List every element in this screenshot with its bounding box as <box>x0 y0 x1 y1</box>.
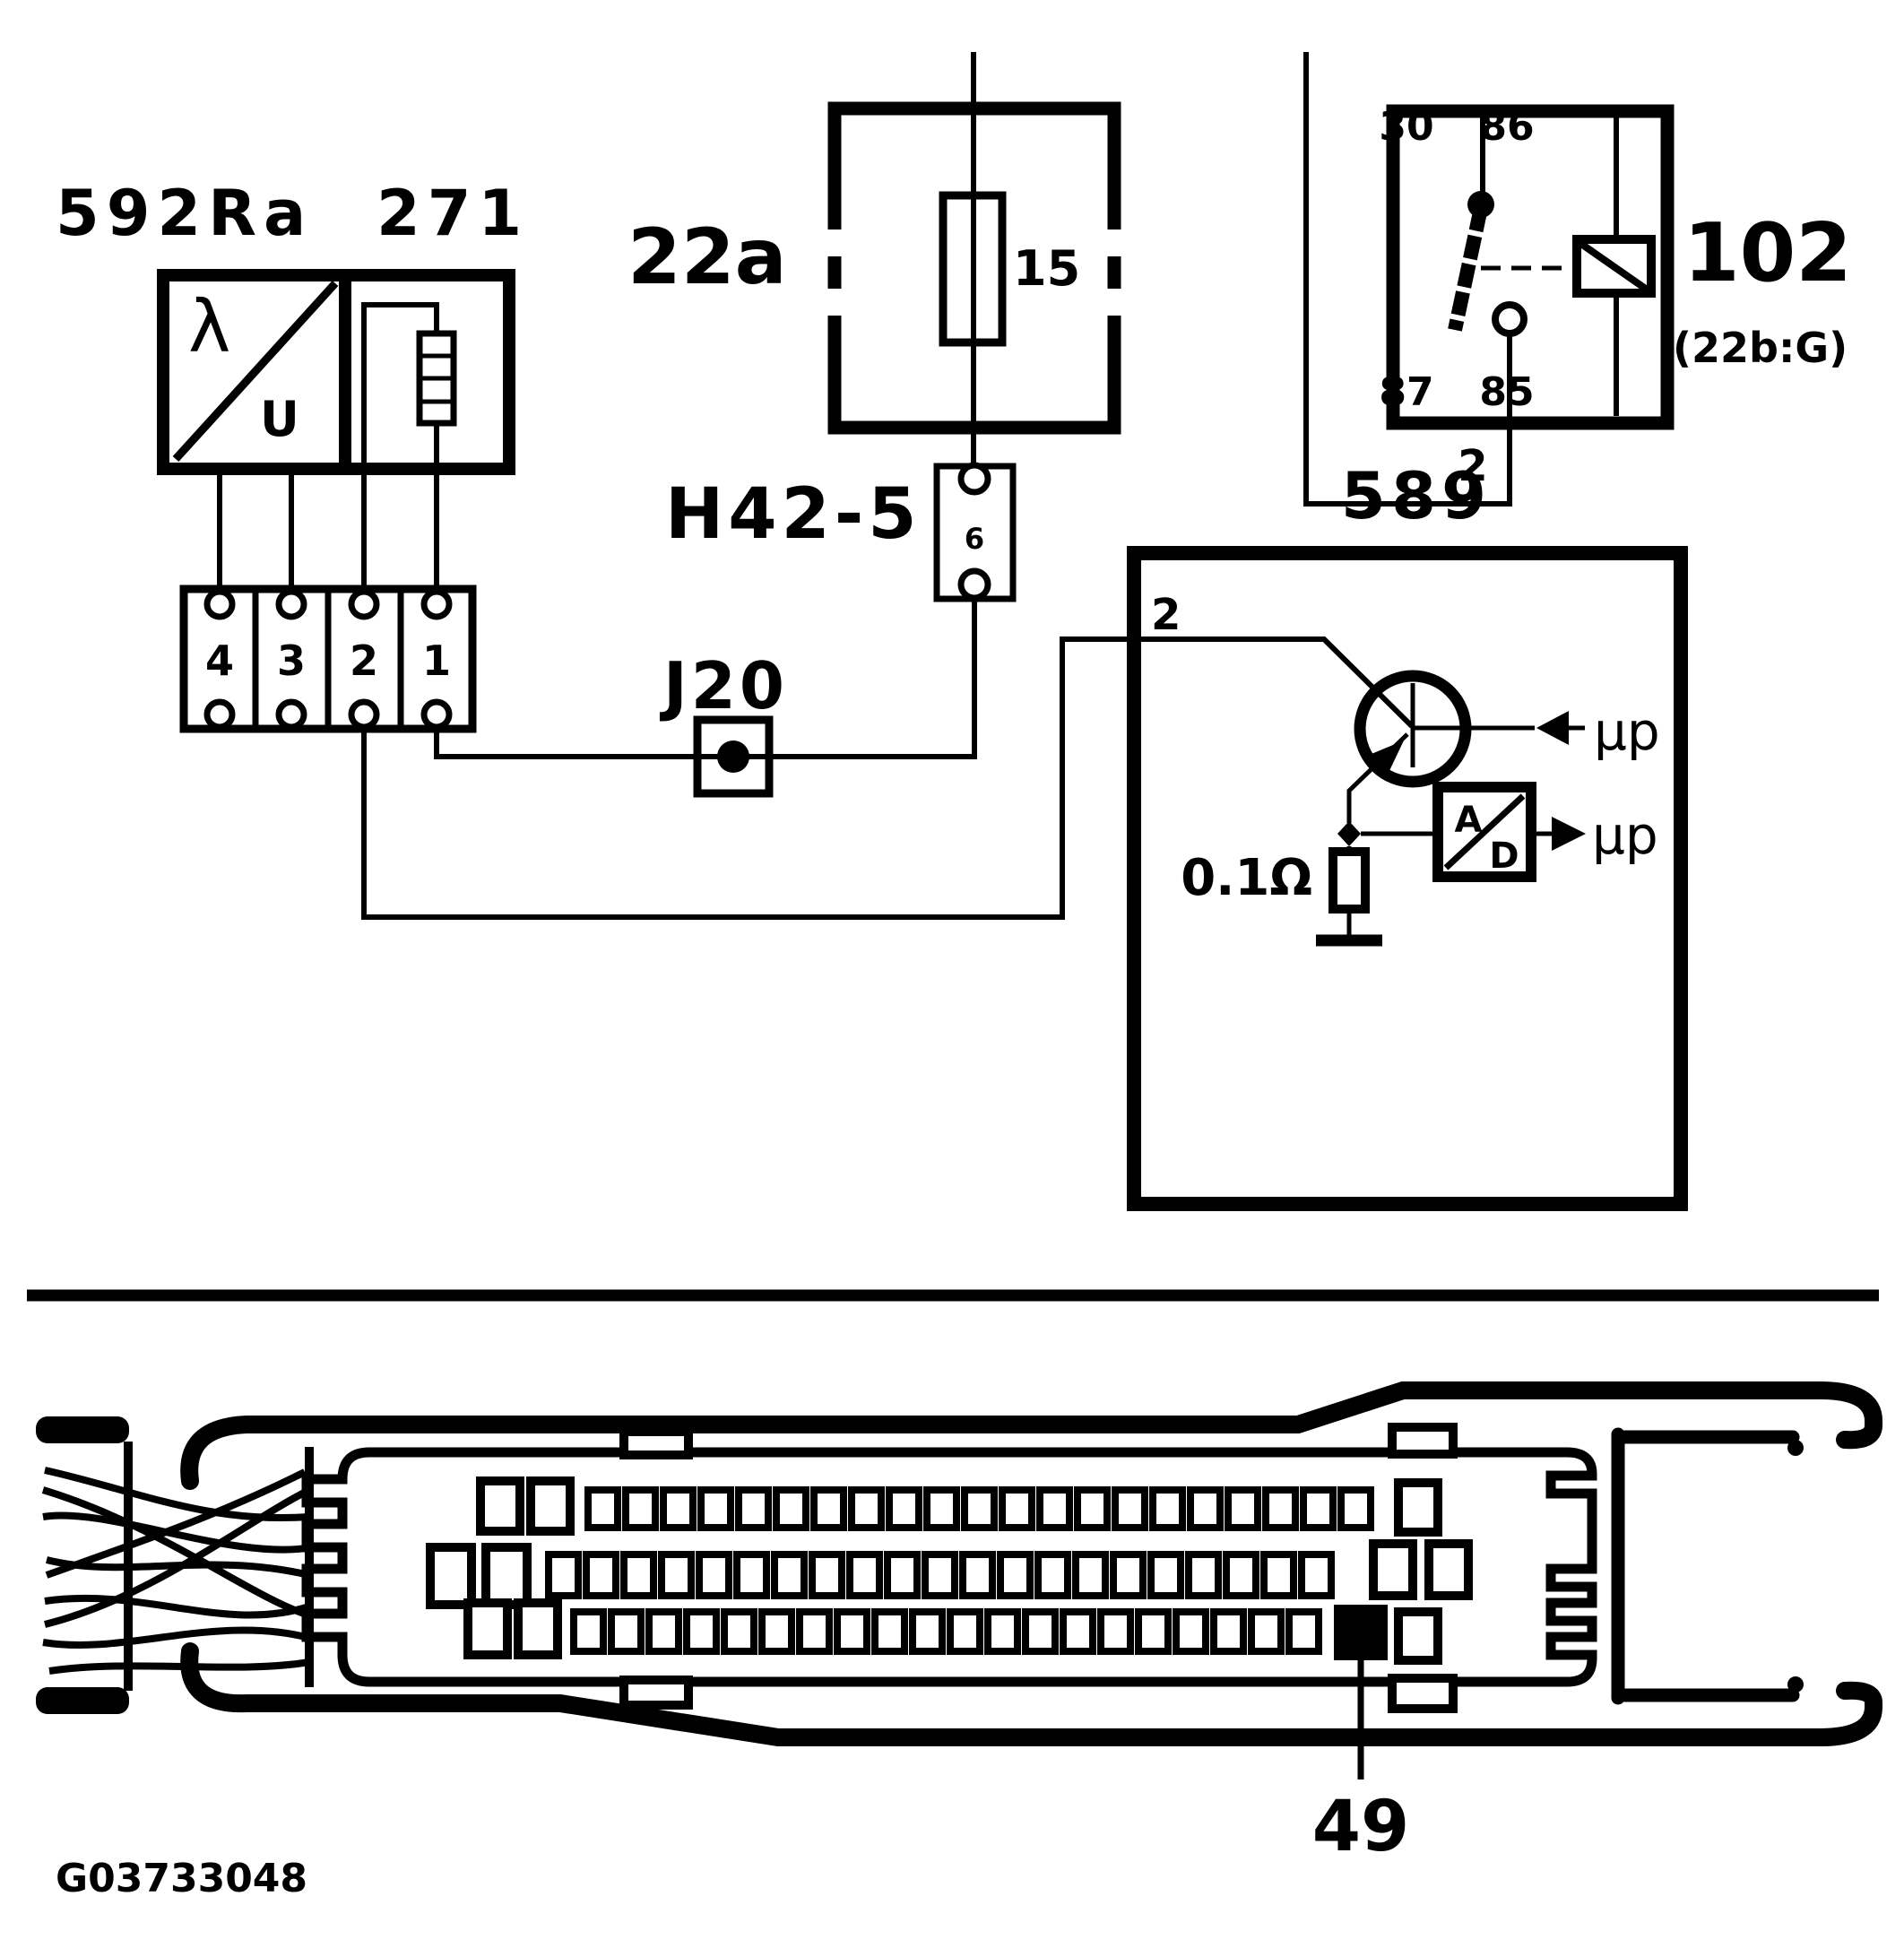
pin-small-row3 <box>1214 1612 1243 1651</box>
pin-small-row3 <box>762 1612 792 1651</box>
pin-small-row2 <box>1226 1554 1256 1596</box>
pin-small-row1 <box>1115 1490 1145 1528</box>
pin-small-row3 <box>1101 1612 1130 1651</box>
pin-small-row1 <box>1153 1490 1182 1528</box>
figure-code: G03733048 <box>56 1856 307 1901</box>
relay-pin-30: 30 <box>1379 104 1433 150</box>
pin-small-row1 <box>626 1490 655 1528</box>
pin-small-row1 <box>663 1490 693 1528</box>
pin-isolated-row2 <box>1429 1544 1468 1596</box>
pin-49-highlight <box>1337 1608 1384 1657</box>
ecu-label: 589 <box>1341 458 1492 533</box>
wiring-diagram-canvas: 592Ra 271 λ U 4 3 2 1 <box>0 0 1904 1957</box>
relay-label: 102 <box>1683 206 1852 300</box>
junction-diamond-icon <box>1337 821 1361 846</box>
h42-label: H42-5 <box>665 474 921 555</box>
bracket-tip-top <box>1787 1440 1804 1456</box>
pin-isolated-row1 <box>1398 1483 1438 1532</box>
splice-dot-icon <box>717 740 749 773</box>
pin-small-row3 <box>913 1612 942 1651</box>
pin-small-row2 <box>1189 1554 1218 1596</box>
connector-pin-2: 2 <box>350 636 378 685</box>
pin-small-row1 <box>588 1490 618 1528</box>
pin-small-row3 <box>1176 1612 1206 1651</box>
pin-large-row3 <box>468 1603 507 1655</box>
pin-small-row2 <box>1302 1554 1331 1596</box>
pin-small-row1 <box>1303 1490 1333 1528</box>
pin-small-row2 <box>1113 1554 1143 1596</box>
pin-small-row2 <box>963 1554 992 1596</box>
adc-d-label: D <box>1489 836 1519 877</box>
pin-small-row1 <box>1190 1490 1220 1528</box>
pin-small-row1 <box>701 1490 731 1528</box>
pin-large-row1 <box>531 1481 570 1531</box>
connector-pin-3: 3 <box>277 636 306 685</box>
relay-contact-circle <box>1495 305 1524 333</box>
pin-small-row2 <box>1151 1554 1181 1596</box>
pin-small-row3 <box>1063 1612 1093 1651</box>
pin-small-row3 <box>800 1612 829 1651</box>
switch-arm-icon <box>1455 208 1481 330</box>
pin-small-row3 <box>724 1612 754 1651</box>
pin-small-row1 <box>965 1490 994 1528</box>
pin-small-row2 <box>887 1554 917 1596</box>
mp-label-top: μp <box>1594 701 1660 762</box>
mp-arrow-top <box>1536 711 1585 745</box>
bracket-tip-bottom <box>1787 1676 1804 1693</box>
mp-arrow-bottom <box>1531 817 1586 851</box>
pin-small-row3 <box>611 1612 641 1651</box>
fuse-value: 15 <box>1013 240 1080 297</box>
pin-large-row1 <box>480 1481 520 1531</box>
sensor-label-left: 592Ra <box>56 177 313 250</box>
pin-small-row2 <box>1264 1554 1294 1596</box>
fuse-box-22a <box>822 108 1127 428</box>
pin-small-row1 <box>1002 1490 1032 1528</box>
pin-small-row2 <box>775 1554 804 1596</box>
pin-small-row3 <box>1251 1612 1281 1651</box>
pin-small-row2 <box>586 1554 616 1596</box>
sensor-wires <box>220 469 437 592</box>
shunt-resistor <box>1316 846 1382 940</box>
relay-pin-87: 87 <box>1379 369 1433 415</box>
pin-small-row1 <box>1266 1490 1295 1528</box>
connector-pin-4: 4 <box>205 636 234 685</box>
pin-small-row1 <box>739 1490 768 1528</box>
sensor-label-right: 271 <box>376 177 529 250</box>
pin-small-row2 <box>850 1554 879 1596</box>
pin-small-row1 <box>852 1490 881 1528</box>
sleeve-nub-bottom <box>36 1687 129 1714</box>
relay-sub-label: (22b:G) <box>1673 324 1848 372</box>
pin-small-row2 <box>1076 1554 1105 1596</box>
wire-harness-icon <box>43 1470 312 1671</box>
shunt-value: 0.1Ω <box>1181 849 1312 907</box>
h42-pin-top <box>961 465 988 492</box>
pin-large-row2 <box>430 1547 472 1605</box>
pin-small-row3 <box>687 1612 716 1651</box>
pin-small-row3 <box>1289 1612 1319 1651</box>
arrow-right-icon <box>1552 817 1586 851</box>
pin-small-row2 <box>1000 1554 1030 1596</box>
pin-small-row2 <box>812 1554 842 1596</box>
pin-small-row3 <box>649 1612 679 1651</box>
pin-small-row3 <box>1026 1612 1055 1651</box>
pin-small-row2 <box>737 1554 766 1596</box>
arrow-left-icon <box>1536 711 1569 745</box>
pin49-label: 49 <box>1312 1787 1410 1867</box>
adc-a-label: A <box>1455 800 1483 841</box>
pin-large-row2 <box>486 1547 527 1605</box>
pin-small-row3 <box>574 1612 603 1651</box>
pin-small-row2 <box>662 1554 691 1596</box>
pin-small-row1 <box>927 1490 956 1528</box>
pin-small-row1 <box>776 1490 806 1528</box>
pin-small-row3 <box>837 1612 867 1651</box>
ecu-input-pin: 2 <box>1151 590 1181 640</box>
pin-small-row2 <box>699 1554 729 1596</box>
pin-small-row1 <box>1228 1490 1258 1528</box>
relay-pin-86: 86 <box>1479 104 1534 150</box>
pin-small-row1 <box>1040 1490 1069 1528</box>
connector-pin-1: 1 <box>422 636 451 685</box>
relay-pin-85: 85 <box>1479 369 1534 415</box>
ecu-connector-illustration: 49 <box>36 1390 1874 1867</box>
pin-small-row3 <box>1138 1612 1168 1651</box>
h42-pin-bottom <box>961 571 988 598</box>
pin-small-row1 <box>1077 1490 1107 1528</box>
pin-small-row1 <box>889 1490 919 1528</box>
lambda-symbol: λ <box>188 285 230 368</box>
pin-small-row2 <box>624 1554 653 1596</box>
h42-pin-number: 6 <box>965 522 984 556</box>
pin-isolated-row3 <box>1398 1612 1438 1660</box>
pin-small-row2 <box>925 1554 955 1596</box>
pin-small-row2 <box>1038 1554 1068 1596</box>
resistor-icon <box>1333 852 1365 909</box>
pin-small-row3 <box>950 1612 980 1651</box>
pin-small-row1 <box>1341 1490 1371 1528</box>
pin-isolated-row2 <box>1373 1544 1413 1596</box>
pin-large-row3 <box>518 1603 558 1655</box>
wiring-diagram-page: 592Ra 271 λ U 4 3 2 1 <box>0 0 1904 1957</box>
voltage-symbol: U <box>260 391 299 447</box>
pin-small-row1 <box>814 1490 844 1528</box>
sleeve-nub-top <box>36 1416 129 1443</box>
pin-small-row2 <box>549 1554 578 1596</box>
mating-bracket <box>1618 1434 1793 1698</box>
pin-small-row3 <box>875 1612 904 1651</box>
mp-label-bottom: μp <box>1592 805 1658 866</box>
pin-small-row3 <box>988 1612 1017 1651</box>
fusebox-label: 22a <box>627 212 787 302</box>
pin-field <box>430 1481 1468 1660</box>
splice-j20 <box>697 720 769 793</box>
splice-label: J20 <box>659 648 788 723</box>
